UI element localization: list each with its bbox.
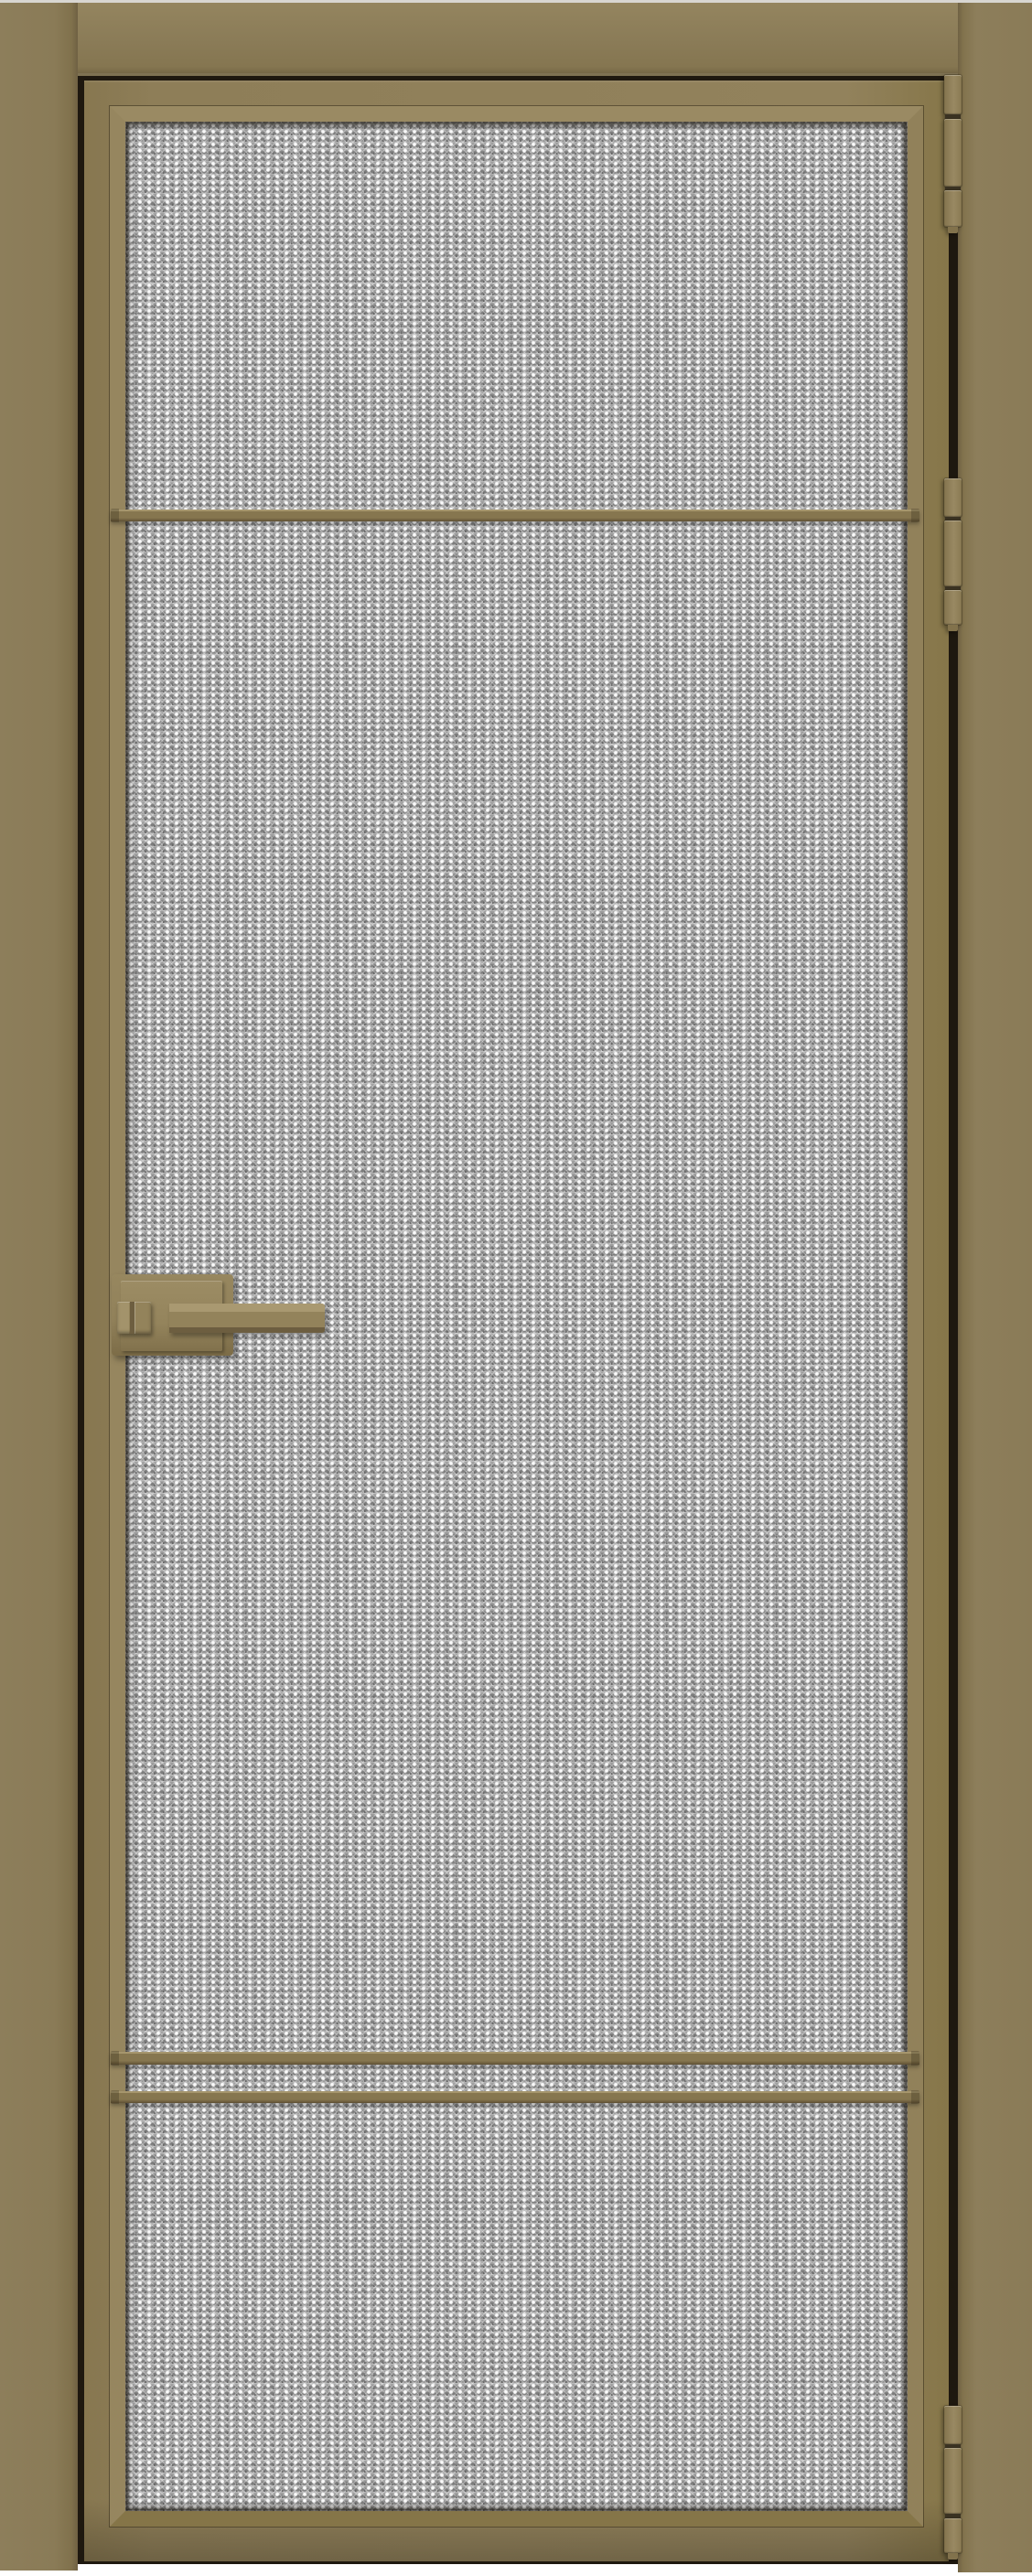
door-frame-right-jamb	[958, 3, 1032, 2572]
door-frame-left-jamb	[0, 3, 78, 2571]
door-product-image	[0, 0, 1032, 2576]
thumbturn-knob	[117, 1302, 151, 1334]
lever-handle	[169, 1304, 325, 1333]
thumbturn-slot	[130, 1302, 134, 1334]
door-frame-head	[0, 3, 1032, 76]
